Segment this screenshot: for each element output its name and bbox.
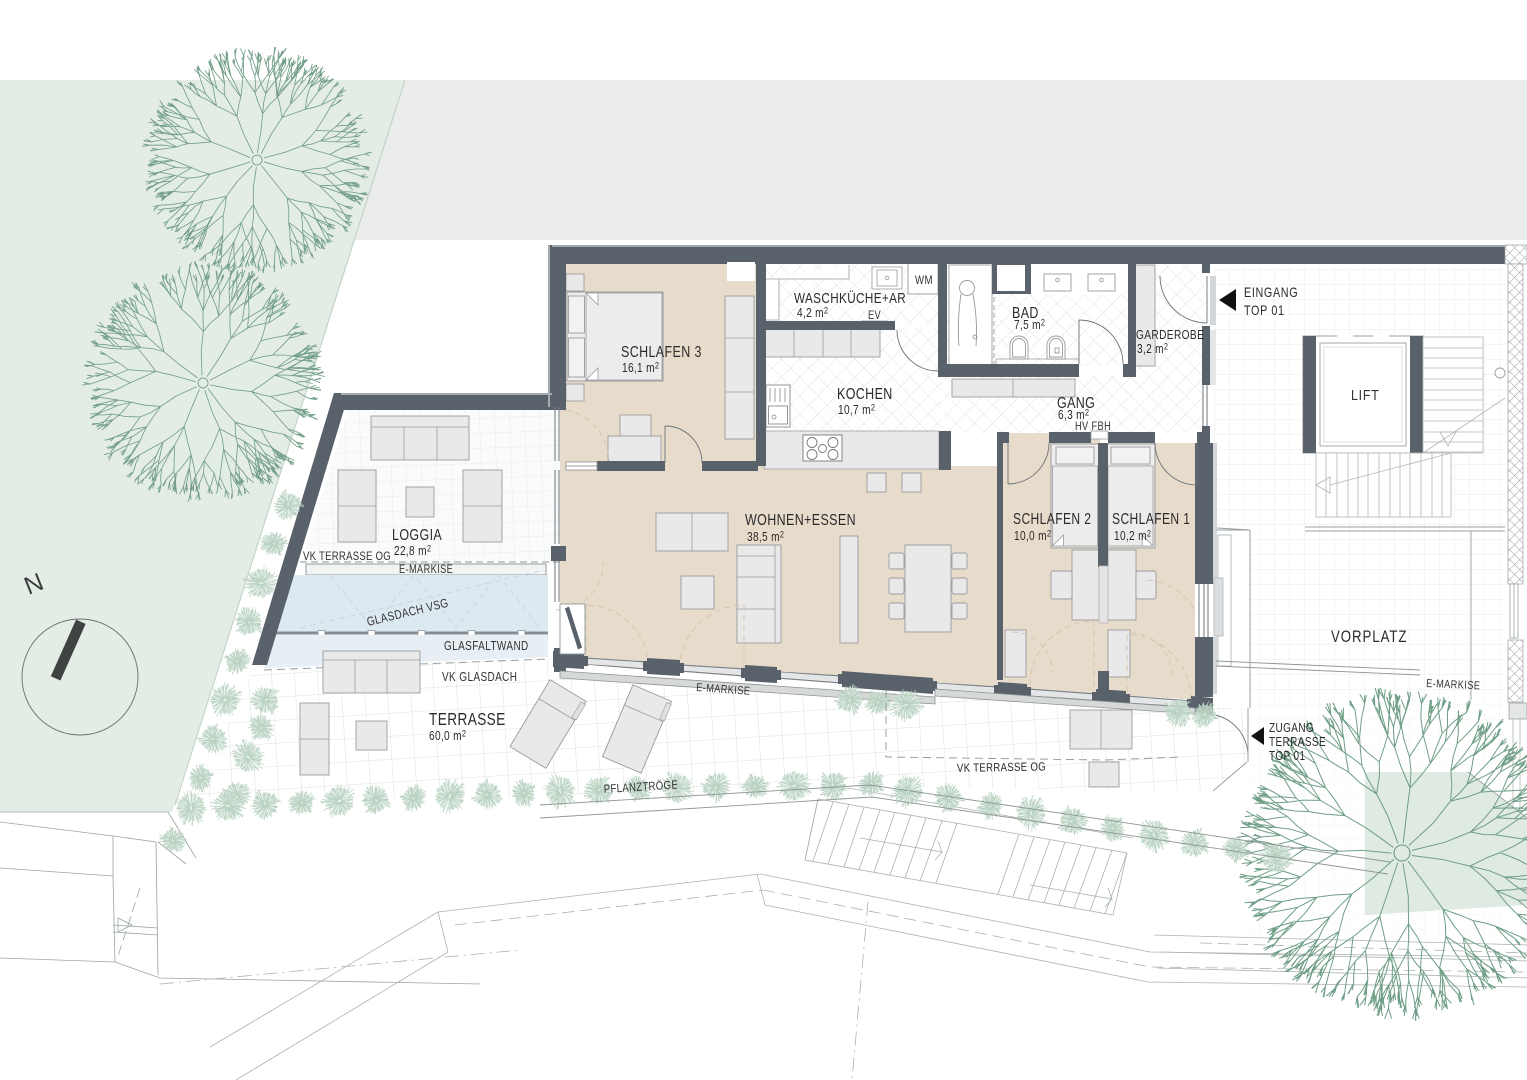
- svg-text:E-MARKISE: E-MARKISE: [399, 564, 453, 576]
- svg-text:EV: EV: [868, 310, 881, 322]
- svg-text:TOP 01: TOP 01: [1269, 750, 1305, 763]
- svg-text:6,3 m2: 6,3 m2: [1058, 407, 1089, 422]
- svg-text:SCHLAFEN 2: SCHLAFEN 2: [1013, 510, 1091, 528]
- svg-text:WOHNEN+ESSEN: WOHNEN+ESSEN: [745, 512, 856, 530]
- svg-text:10,2 m2: 10,2 m2: [1114, 528, 1151, 543]
- svg-text:VK TERRASSE OG: VK TERRASSE OG: [957, 761, 1046, 776]
- svg-text:EINGANG: EINGANG: [1244, 285, 1298, 300]
- svg-text:LOGGIA: LOGGIA: [392, 527, 442, 545]
- svg-text:38,5 m2: 38,5 m2: [747, 529, 784, 544]
- svg-text:KOCHEN: KOCHEN: [837, 386, 893, 404]
- svg-text:SCHLAFEN 3: SCHLAFEN 3: [621, 344, 702, 362]
- svg-text:ZUGANG: ZUGANG: [1269, 722, 1314, 735]
- svg-text:10,0 m2: 10,0 m2: [1014, 528, 1051, 543]
- svg-text:TERRASSE: TERRASSE: [1269, 736, 1326, 749]
- svg-text:WASCHKÜCHE+AR: WASCHKÜCHE+AR: [794, 290, 906, 307]
- svg-text:7,5 m2: 7,5 m2: [1014, 317, 1045, 332]
- svg-text:VK GLASDACH: VK GLASDACH: [442, 671, 517, 684]
- svg-text:VORPLATZ: VORPLATZ: [1331, 628, 1407, 647]
- svg-text:GLASFALTWAND: GLASFALTWAND: [444, 640, 529, 653]
- svg-text:10,7 m2: 10,7 m2: [838, 402, 875, 417]
- svg-text:VK TERRASSE OG: VK TERRASSE OG: [303, 550, 391, 563]
- svg-text:16,1 m2: 16,1 m2: [622, 360, 659, 375]
- svg-text:GARDEROBE: GARDEROBE: [1136, 328, 1204, 342]
- svg-text:3,2 m2: 3,2 m2: [1137, 341, 1168, 356]
- svg-text:22,8 m2: 22,8 m2: [394, 543, 431, 558]
- svg-text:4,2 m2: 4,2 m2: [797, 305, 828, 320]
- svg-text:TERRASSE: TERRASSE: [429, 711, 506, 730]
- svg-text:WM: WM: [915, 274, 933, 287]
- svg-text:E-MARKISE: E-MARKISE: [1426, 678, 1481, 692]
- svg-text:60,0 m2: 60,0 m2: [429, 728, 466, 743]
- svg-text:HV FBH: HV FBH: [1075, 421, 1111, 433]
- svg-text:SCHLAFEN 1: SCHLAFEN 1: [1112, 510, 1190, 528]
- svg-text:LIFT: LIFT: [1351, 387, 1380, 403]
- svg-text:TOP 01: TOP 01: [1244, 303, 1285, 318]
